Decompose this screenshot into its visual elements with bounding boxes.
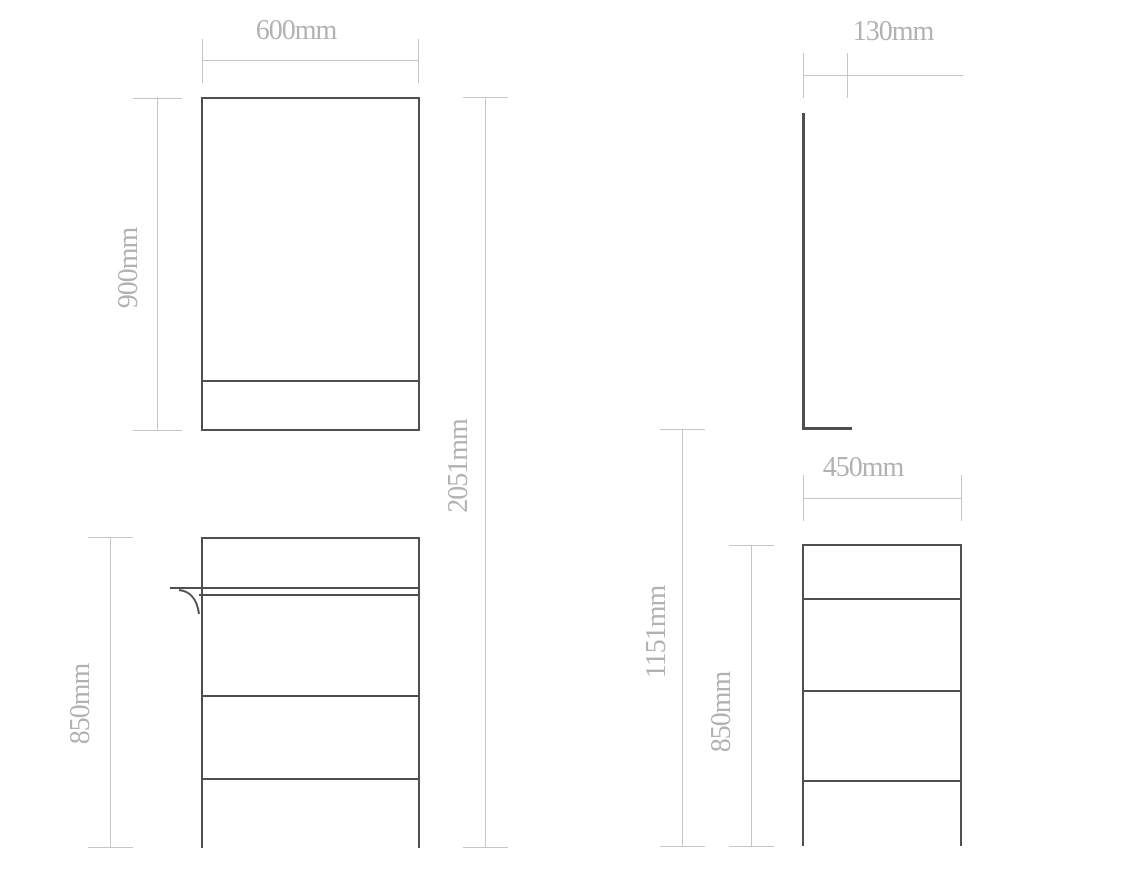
dim-130-line xyxy=(803,75,963,76)
countertop-nose-curve xyxy=(178,586,204,616)
dim-label-cabinet-height-front: 850mm xyxy=(67,664,95,745)
cabinet-side-line-1 xyxy=(802,598,962,600)
dim-label-cabinet-depth: 450mm xyxy=(823,454,904,482)
dim-1151-tick-top xyxy=(660,429,705,430)
dim-2051-line xyxy=(485,97,486,848)
dim-label-cabinet-height-side: 850mm xyxy=(708,672,736,753)
dim-label-mirror-depth: 130mm xyxy=(853,18,934,46)
dim-label-mirror-height: 900mm xyxy=(115,228,143,309)
dim-2051-tick-bottom xyxy=(463,847,508,848)
dim-850-front-tick-top xyxy=(88,537,133,538)
cabinet-front-drawer-line-1 xyxy=(201,695,420,697)
cabinet-side-top-edge xyxy=(802,544,962,546)
dim-850-front-line xyxy=(110,537,111,848)
cabinet-side-line-2 xyxy=(802,690,962,692)
dim-900-line xyxy=(157,97,158,431)
cabinet-front-top-edge xyxy=(201,537,420,539)
dim-450-tick-left xyxy=(803,475,804,521)
dim-850-side-tick-top xyxy=(729,545,774,546)
cabinet-front-left-edge xyxy=(201,537,203,848)
dim-900-tick-bottom xyxy=(133,430,182,431)
mirror-side-back-line xyxy=(802,113,805,430)
countertop-bottom-line xyxy=(199,594,420,596)
dim-450-tick-right xyxy=(961,475,962,521)
cabinet-front-right-edge xyxy=(418,537,420,848)
dim-850-side-tick-bottom xyxy=(729,846,774,847)
dim-850-front-tick-bottom xyxy=(88,847,133,848)
dim-450-line xyxy=(803,498,962,499)
dim-850-side-line xyxy=(751,545,752,846)
mirror-side-bottom-ledge xyxy=(802,427,852,430)
countertop-top-line xyxy=(170,587,420,589)
dim-130-tick-left xyxy=(803,53,804,98)
dim-2051-tick-top xyxy=(463,97,508,98)
dim-900-tick-top xyxy=(133,98,182,99)
cabinet-side-line-3 xyxy=(802,780,962,782)
dim-600-line xyxy=(202,60,418,61)
cabinet-side-left-edge xyxy=(802,544,804,846)
cabinet-front-drawer-line-2 xyxy=(201,778,420,780)
dim-label-floor-to-mirror-height: 1151mm xyxy=(643,586,671,679)
technical-drawing-canvas: 600mm 900mm 2051mm 850mm 130mm 450mm 115… xyxy=(0,0,1134,883)
dim-label-total-height: 2051mm xyxy=(445,419,473,513)
mirror-front-bottom-rail-line xyxy=(201,380,420,382)
dim-600-tick-left xyxy=(202,39,203,83)
dim-1151-tick-bottom xyxy=(660,846,705,847)
cabinet-side-right-edge xyxy=(960,544,962,846)
dim-600-tick-right xyxy=(418,39,419,83)
dim-1151-line xyxy=(682,429,683,846)
dim-130-tick-right xyxy=(847,53,848,98)
dim-label-mirror-width: 600mm xyxy=(256,17,337,45)
